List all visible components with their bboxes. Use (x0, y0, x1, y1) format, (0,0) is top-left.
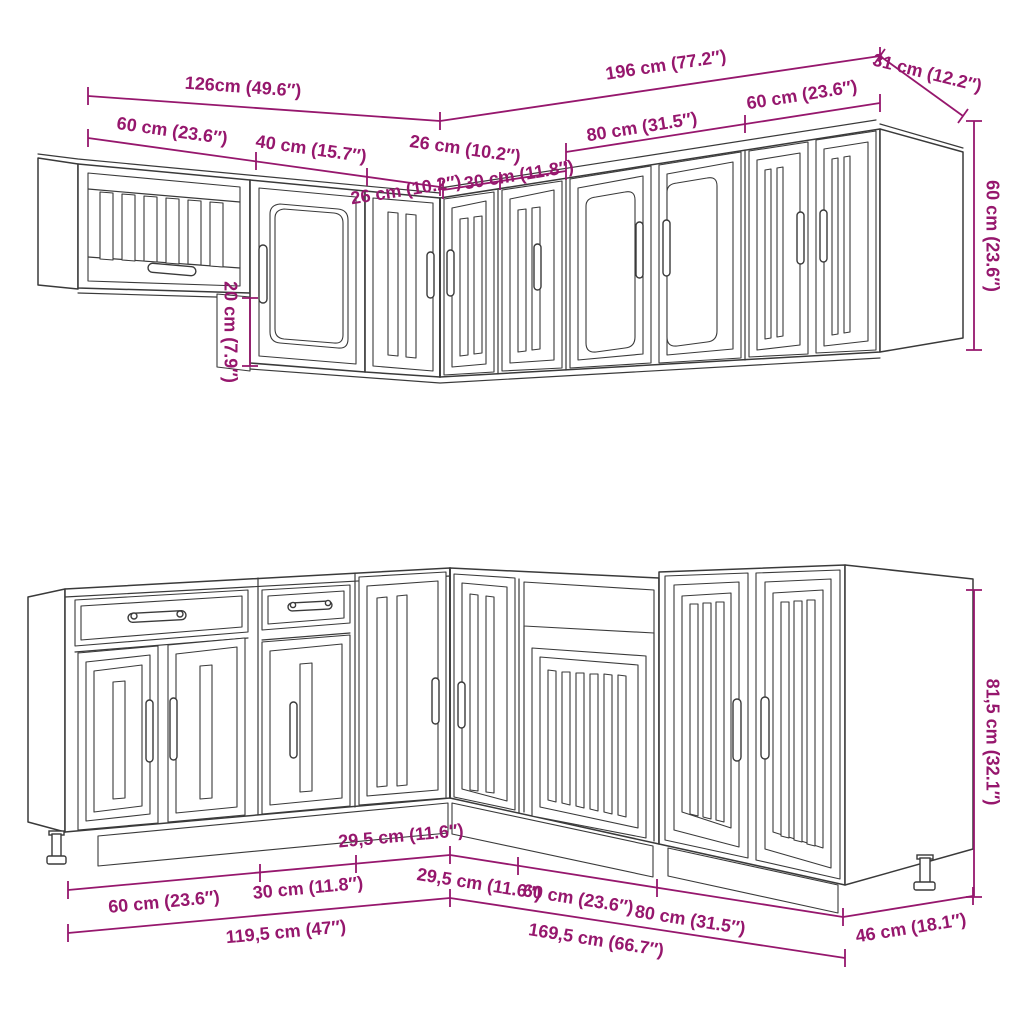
base-corner-filler-right (454, 574, 515, 810)
cabinet-handle (663, 220, 670, 276)
dim-label-top-60-right: 60 cm (23.6″) (745, 76, 858, 113)
base-cabinet-right-side-panel (845, 565, 973, 885)
cabinet-handle (447, 250, 454, 296)
cabinet-handle (432, 678, 439, 724)
dim-label-base-depth: 46 cm (18.1″) (854, 909, 967, 946)
dim-label-top-26-left: 26 cm (10.2″) (408, 131, 521, 166)
cabinet-handle (733, 699, 741, 761)
cabinet-handle (636, 222, 643, 278)
wall-cabinet-30 (502, 181, 562, 371)
cabinet-handle (170, 698, 177, 760)
adjustable-leg (47, 831, 66, 864)
wall-cabinet-60-bridge (78, 164, 250, 298)
dim-label-wall-height: 60 cm (23.6″) (982, 180, 1002, 292)
dim-label-base-total-left: 119,5 cm (47″) (225, 916, 347, 947)
cabinet-handle (259, 245, 267, 303)
dim-label-right-depth: 31 cm (12.2″) (871, 50, 984, 96)
cabinet-handle (797, 212, 804, 264)
dim-label-base-30: 30 cm (11.8″) (252, 873, 364, 903)
cabinet-handle (458, 682, 465, 728)
dim-label-drop-20: 20 cm (7.9″) (220, 281, 240, 383)
dim-label-total-right: 196 cm (77.2″) (604, 46, 727, 84)
cabinet-handle (534, 244, 541, 290)
product-dimension-diagram: 126cm (49.6″) 196 cm (77.2″) 31 cm (12.2… (0, 0, 1024, 1024)
base-corner-filler-left (359, 572, 446, 805)
cabinet-handle (290, 702, 297, 758)
base-cabinet-side-panel (28, 589, 65, 832)
dim-label-base-80: 80 cm (31.5″) (633, 901, 746, 938)
wall-cabinet-right-side-panel (880, 129, 963, 352)
base-cabinet-80 (659, 565, 845, 885)
cabinet-handle (146, 700, 153, 762)
cabinet-handle (761, 697, 769, 759)
dim-label-base-total-right: 169,5 cm (66.7″) (527, 919, 665, 960)
cabinet-handle (820, 210, 827, 262)
dim-label-base-height: 81,5 cm (32.1″) (982, 679, 1002, 806)
dim-label-top-60-left: 60 cm (23.6″) (115, 113, 228, 148)
base-cabinet-run (28, 565, 973, 913)
wall-cabinet-26-left (365, 191, 440, 377)
dim-label-top-40: 40 cm (15.7″) (254, 131, 367, 166)
cabinet-handle (427, 252, 434, 298)
wall-cabinet-26-right (444, 192, 494, 375)
kitchen-cabinet-diagram-canvas: 126cm (49.6″) 196 cm (77.2″) 31 cm (12.2… (0, 0, 1024, 1024)
dim-label-base-60-left: 60 cm (23.6″) (107, 887, 220, 917)
base-cabinet-30 (262, 585, 350, 814)
wall-cabinet-40-glass (250, 180, 365, 372)
wall-cabinet-side-panel (38, 158, 78, 289)
dim-label-total-left: 126cm (49.6″) (184, 73, 302, 101)
base-sink-cabinet-60 (524, 582, 654, 841)
